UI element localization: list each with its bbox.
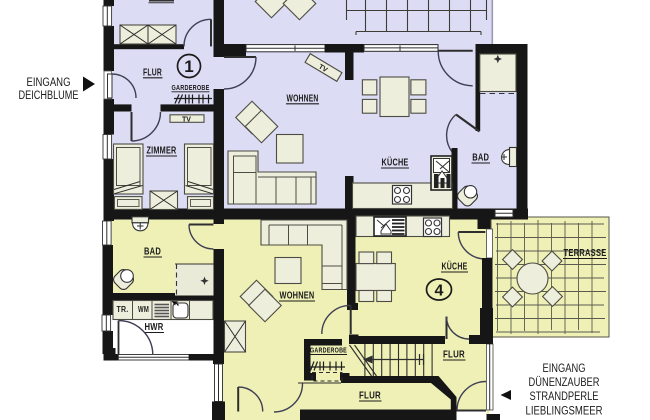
svg-text:FLUR: FLUR	[359, 391, 381, 402]
svg-text:KÜCHE: KÜCHE	[442, 260, 468, 273]
svg-text:ZIMMER: ZIMMER	[147, 146, 177, 157]
svg-text:GARDEROBE: GARDEROBE	[172, 83, 210, 92]
svg-text:STRANDPERLE: STRANDPERLE	[530, 391, 599, 403]
svg-text:WOHNEN: WOHNEN	[280, 291, 315, 302]
svg-text:4: 4	[435, 283, 444, 300]
svg-text:FLUR: FLUR	[143, 68, 162, 79]
svg-text:TR.: TR.	[117, 305, 129, 314]
svg-text:DÜNENZAUBER: DÜNENZAUBER	[529, 377, 600, 389]
svg-text:LIEBLINGSMEER: LIEBLINGSMEER	[526, 406, 603, 418]
svg-text:DEICHBLUME: DEICHBLUME	[19, 90, 79, 102]
svg-text:TERRASSE: TERRASSE	[564, 248, 607, 259]
svg-text:WM: WM	[138, 305, 149, 314]
svg-text:GARDEROBE: GARDEROBE	[310, 346, 347, 355]
svg-text:FLUR: FLUR	[443, 350, 465, 361]
svg-text:WOHNEN: WOHNEN	[287, 94, 319, 105]
svg-text:HWR: HWR	[145, 322, 164, 333]
svg-text:TV: TV	[182, 116, 191, 123]
svg-text:EINGANG: EINGANG	[543, 363, 586, 375]
svg-text:BAD: BAD	[472, 153, 489, 164]
svg-text:EINGANG: EINGANG	[27, 77, 71, 89]
svg-text:1: 1	[184, 57, 193, 76]
svg-text:BAD: BAD	[144, 247, 161, 258]
svg-text:KÜCHE: KÜCHE	[382, 156, 409, 169]
